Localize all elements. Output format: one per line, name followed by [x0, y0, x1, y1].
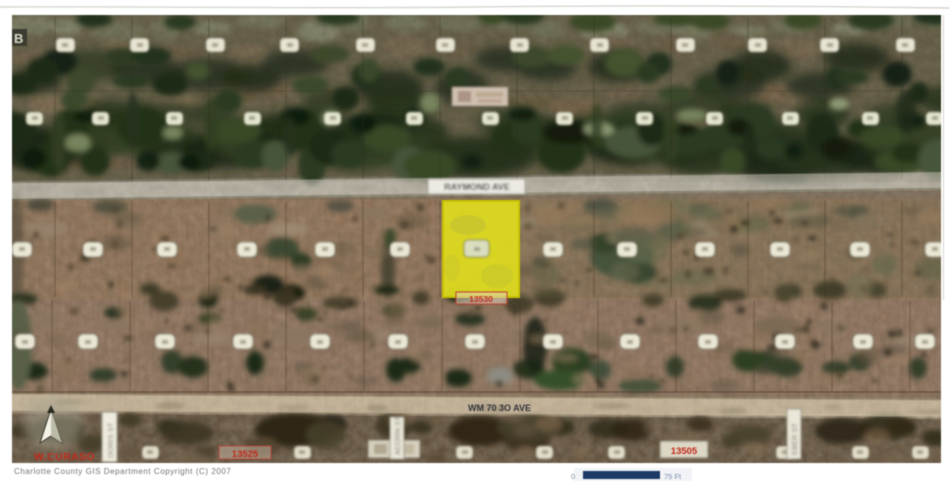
svg-text:B: B	[14, 31, 23, 46]
svg-text:WM 70 3O AVE: WM 70 3O AVE	[468, 403, 531, 413]
svg-text:RAYMOND AVE: RAYMOND AVE	[444, 182, 510, 192]
svg-text:DORIS ST: DORIS ST	[106, 422, 115, 458]
svg-text:EBER ST: EBER ST	[790, 422, 799, 455]
svg-text:W.CURASO: W.CURASO	[34, 451, 95, 463]
svg-text:Charlotte County GIS Departmen: Charlotte County GIS Department Copyrigh…	[14, 467, 231, 476]
svg-text:13530: 13530	[469, 294, 493, 304]
svg-text:ACORN ST: ACORN ST	[393, 416, 402, 455]
svg-text:13525: 13525	[232, 449, 259, 460]
svg-text:0: 0	[571, 472, 575, 481]
svg-text:13505: 13505	[671, 446, 698, 457]
svg-text:75 Ft: 75 Ft	[664, 472, 682, 481]
